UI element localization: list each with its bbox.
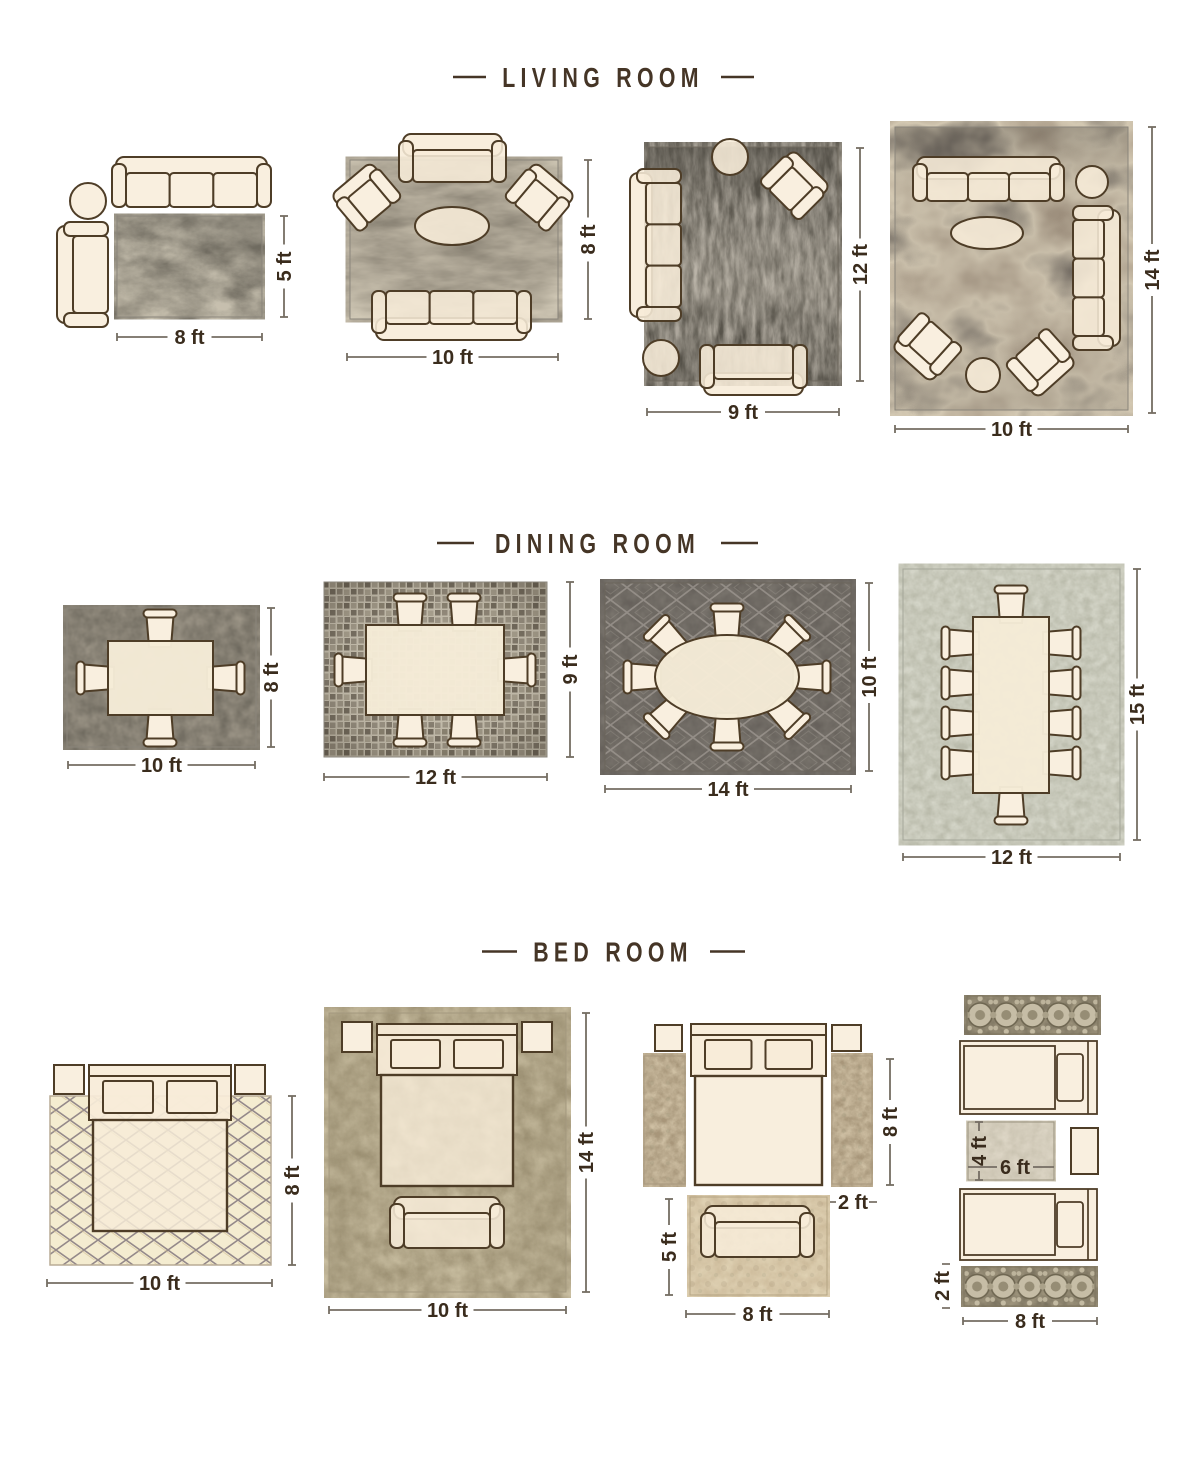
svg-text:5 ft: 5 ft: [659, 1232, 681, 1262]
svg-text:14 ft: 14 ft: [576, 1132, 598, 1173]
svg-text:8 ft: 8 ft: [880, 1107, 902, 1137]
svg-text:2 ft: 2 ft: [932, 1271, 954, 1301]
svg-text:15 ft: 15 ft: [1127, 684, 1149, 725]
svg-text:8 ft: 8 ft: [578, 224, 600, 254]
svg-text:12 ft: 12 ft: [991, 847, 1032, 869]
svg-text:8 ft: 8 ft: [282, 1165, 304, 1195]
svg-text:LIVING ROOM: LIVING ROOM: [502, 62, 704, 94]
svg-text:10 ft: 10 ft: [991, 419, 1032, 441]
svg-text:8 ft: 8 ft: [261, 662, 283, 692]
svg-text:9 ft: 9 ft: [560, 654, 582, 684]
svg-text:10 ft: 10 ft: [139, 1273, 180, 1295]
svg-text:8 ft: 8 ft: [1015, 1311, 1045, 1333]
svg-text:14 ft: 14 ft: [1142, 249, 1164, 290]
svg-text:BED ROOM: BED ROOM: [533, 937, 693, 969]
svg-text:10 ft: 10 ft: [859, 656, 881, 697]
svg-text:14 ft: 14 ft: [707, 779, 748, 801]
svg-text:9 ft: 9 ft: [728, 402, 758, 424]
svg-text:10 ft: 10 ft: [432, 347, 473, 369]
svg-text:DINING ROOM: DINING ROOM: [495, 528, 700, 560]
svg-text:8 ft: 8 ft: [743, 1304, 773, 1326]
svg-text:2 ft: 2 ft: [838, 1192, 868, 1214]
svg-text:8 ft: 8 ft: [175, 327, 205, 349]
svg-text:10 ft: 10 ft: [141, 755, 182, 777]
svg-text:4 ft: 4 ft: [969, 1136, 991, 1166]
svg-text:12 ft: 12 ft: [850, 244, 872, 285]
svg-text:12 ft: 12 ft: [415, 767, 456, 789]
svg-text:10 ft: 10 ft: [427, 1300, 468, 1322]
svg-text:6 ft: 6 ft: [1000, 1157, 1030, 1179]
svg-text:5 ft: 5 ft: [274, 251, 296, 281]
